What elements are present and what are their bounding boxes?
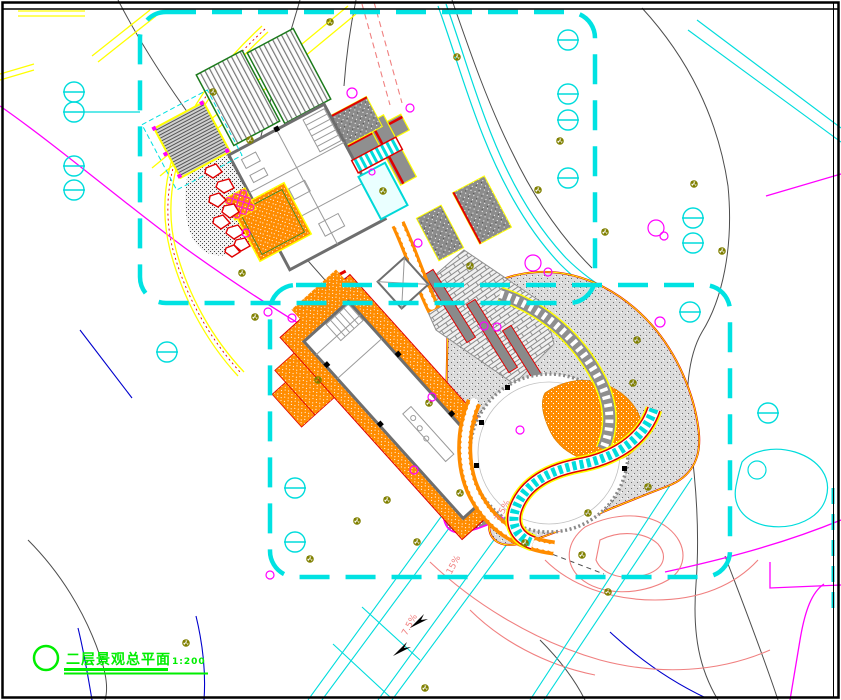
title-underline (64, 668, 168, 671)
site-plan-canvas: 7.5% 15% 7.5% 二层景观总平面 1:200 (0, 0, 841, 700)
roof-terrace (416, 205, 463, 261)
slope-label: 15% (445, 553, 463, 576)
title-circle-icon (34, 646, 58, 670)
sheet-frame (3, 3, 839, 698)
slope-label: 7.5% (400, 612, 420, 637)
title-underline (64, 673, 208, 675)
lower-complex (239, 224, 700, 569)
roof-terrace (452, 176, 511, 244)
title-block: 二层景观总平面 1:200 (34, 646, 208, 675)
plan-title: 二层景观总平面 (66, 651, 171, 668)
plan-scale: 1:200 (172, 657, 206, 667)
cad-viewport: 7.5% 15% 7.5% 二层景观总平面 1:200 (0, 0, 841, 700)
